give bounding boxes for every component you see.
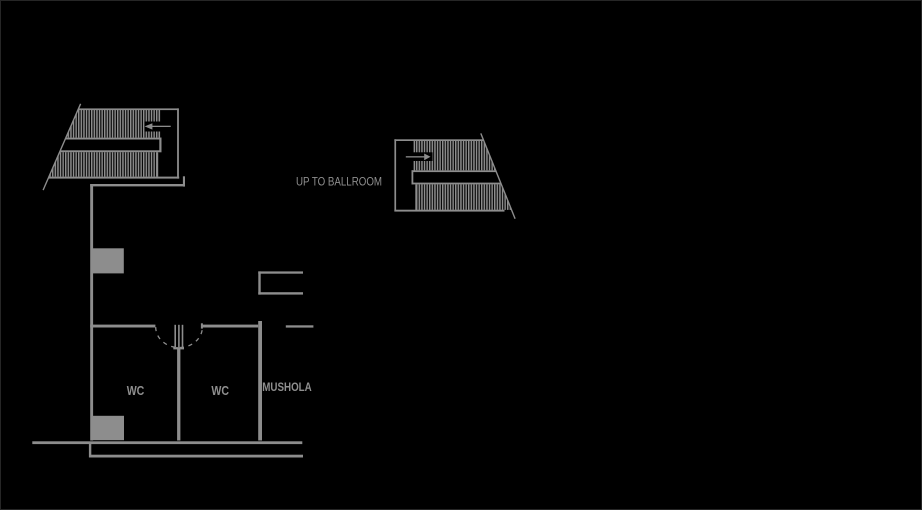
svg-text:UP TO BALLROOM: UP TO BALLROOM — [296, 174, 382, 188]
svg-text:WC: WC — [211, 384, 229, 398]
svg-text:WC: WC — [127, 384, 145, 398]
svg-text:MUSHOLA: MUSHOLA — [262, 380, 312, 394]
